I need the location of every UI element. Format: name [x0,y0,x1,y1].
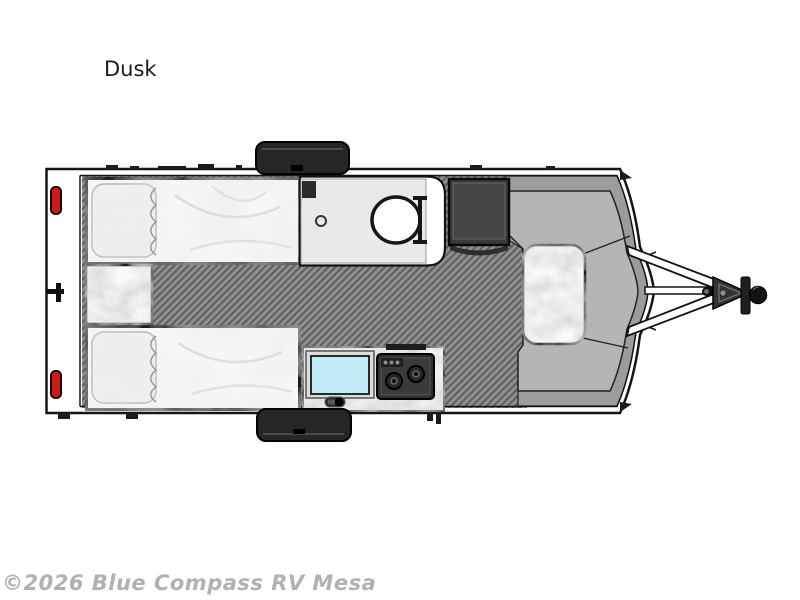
stove [377,354,434,399]
kitchen [303,344,444,411]
pillow-upper [92,184,156,257]
dinette-table [523,245,585,344]
cap-corner-top [620,170,632,180]
watermark: ©2026 Blue Compass RV Mesa [2,571,376,595]
shower-drain [316,216,326,226]
faucet-fixture [325,397,345,407]
bathroom [300,177,445,266]
floorplan-diagram [0,0,800,600]
wheel-bottom [257,409,351,441]
floorplan-canvas: Dusk [0,0,800,600]
bed-upper [87,179,300,264]
wardrobe-cabinet [449,179,509,256]
pillow-lower [92,332,156,403]
nightstand [86,265,152,324]
counter-back-trim [386,344,426,350]
cap-corner-bottom [620,402,632,412]
a-frame-hitch [627,246,767,336]
toilet [372,196,427,244]
hitch-ball [750,287,767,304]
sink [306,351,374,398]
wheel-top [256,142,349,174]
bed-lower [87,327,300,410]
shower-fixture [302,181,316,198]
